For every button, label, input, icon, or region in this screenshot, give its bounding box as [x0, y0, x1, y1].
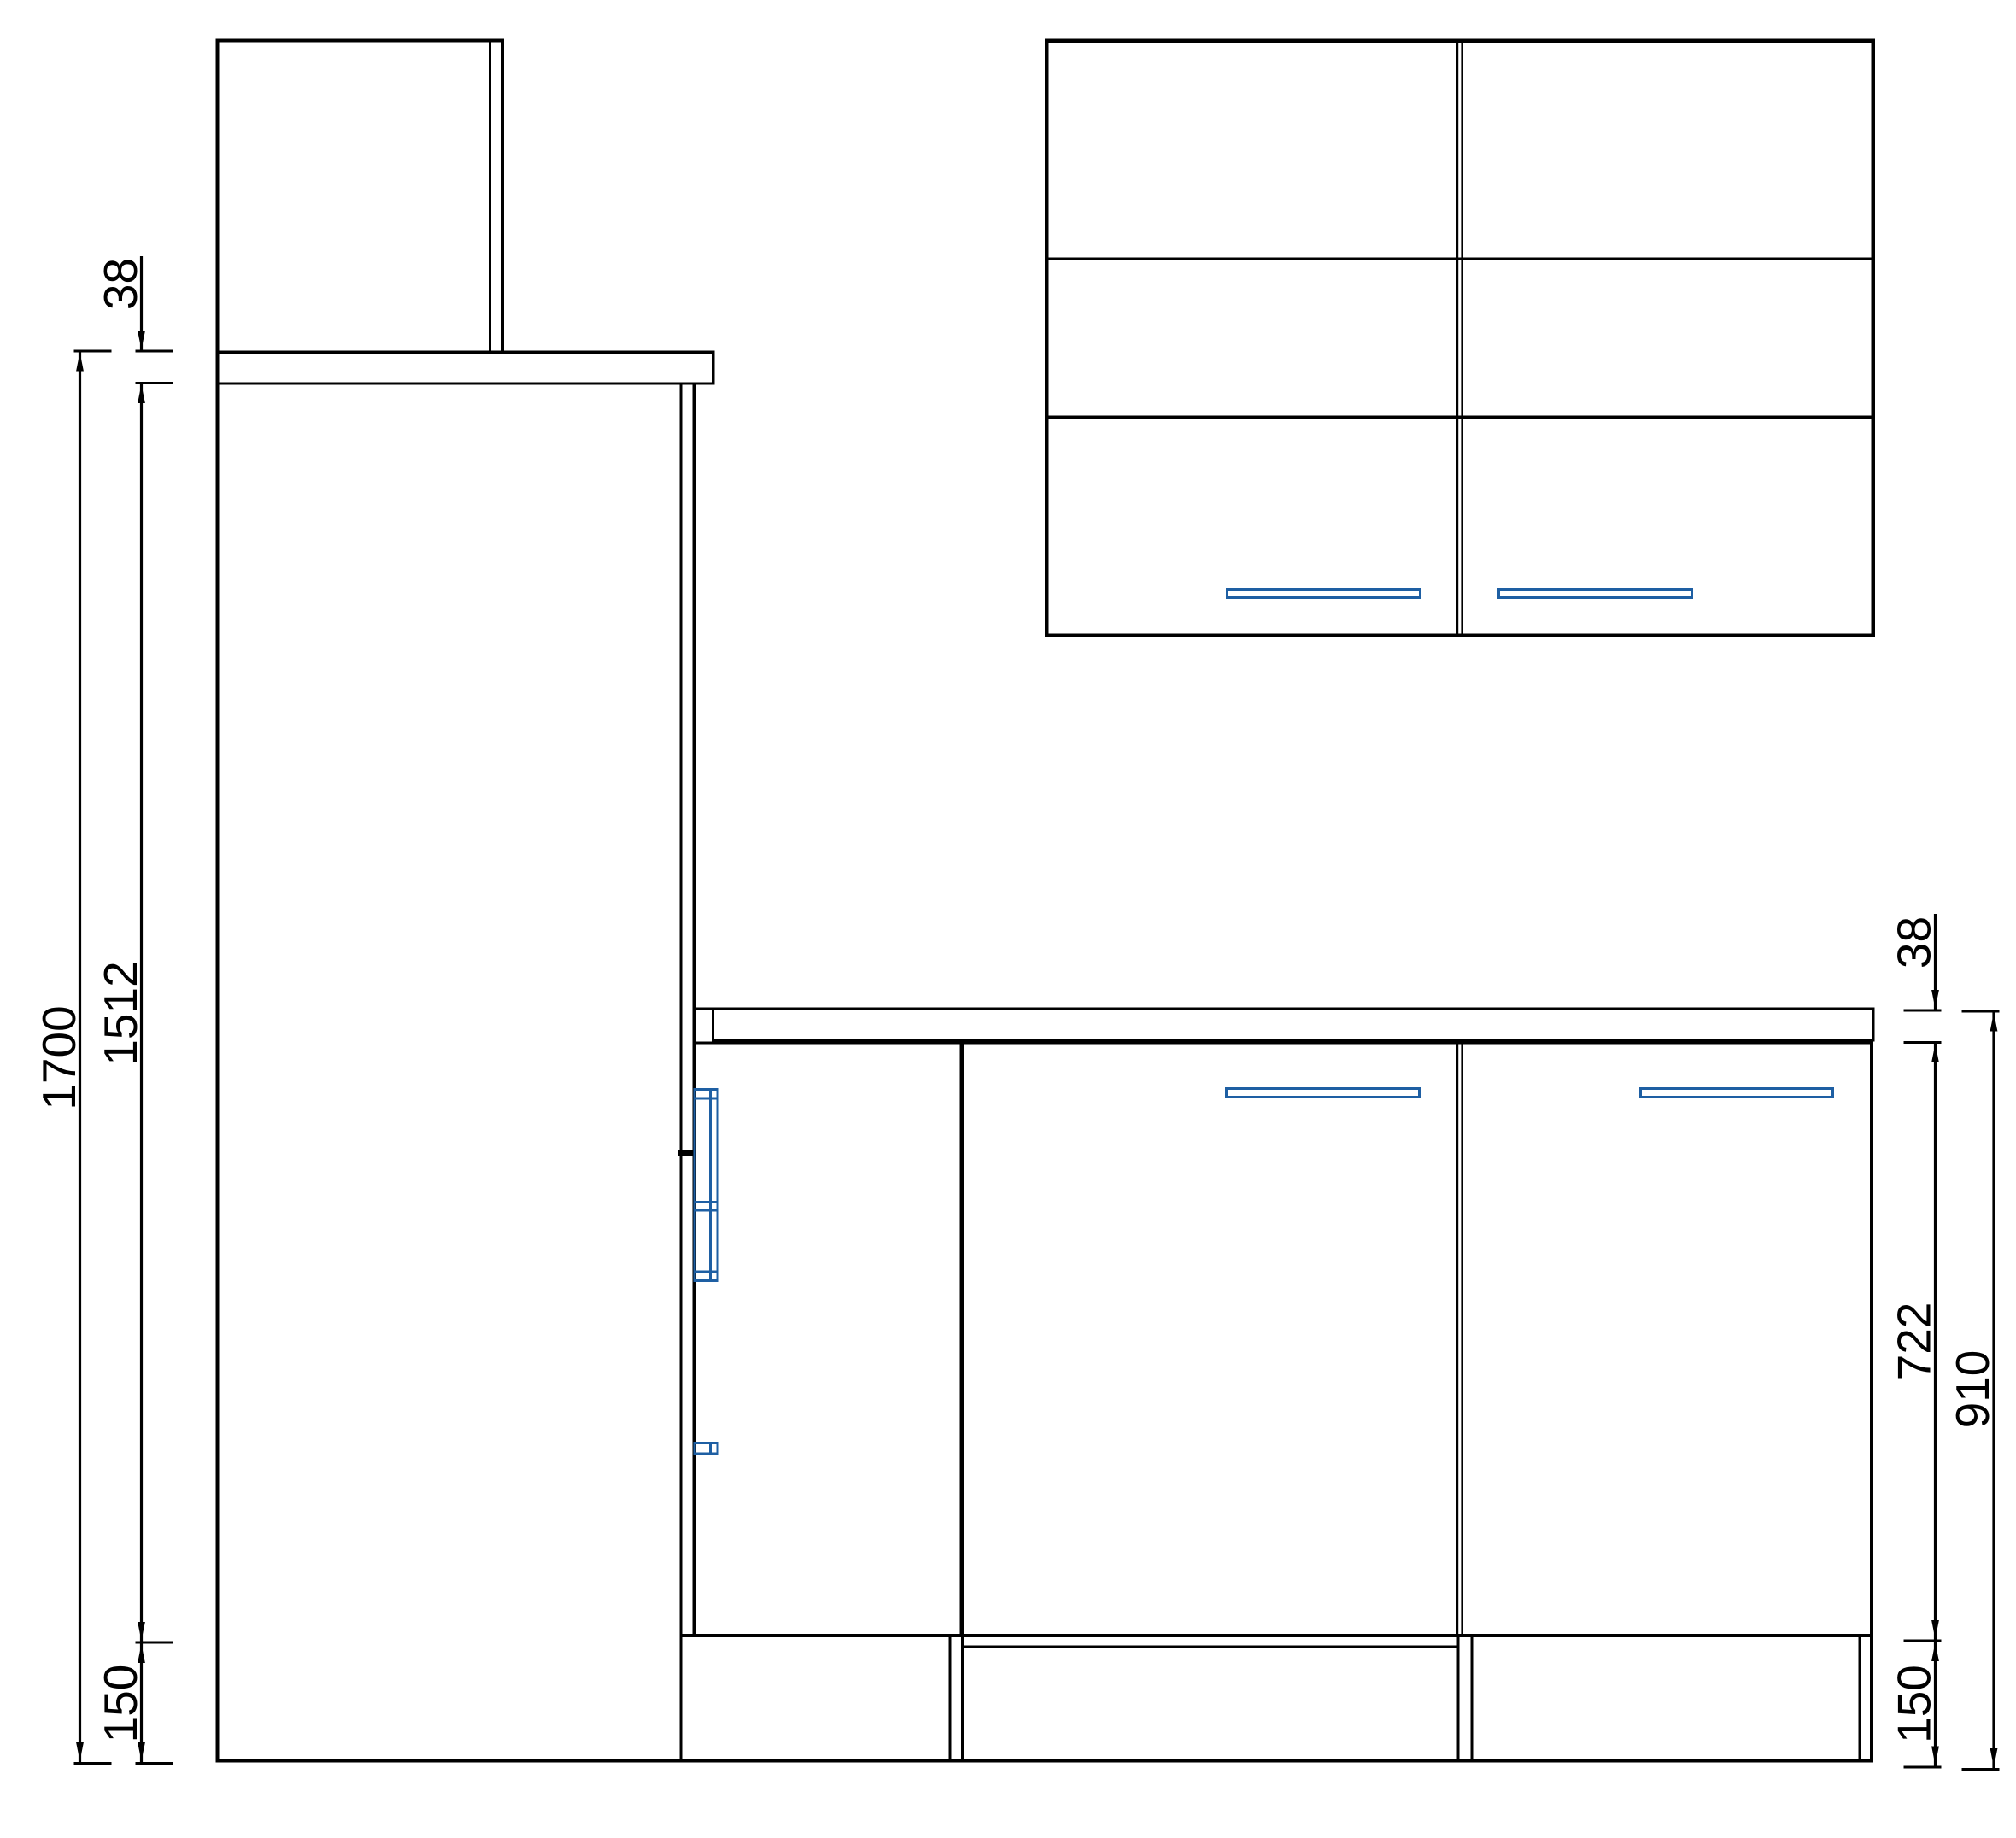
svg-text:38: 38: [1888, 916, 1941, 969]
svg-text:910: 910: [1946, 1350, 1999, 1429]
svg-text:722: 722: [1888, 1302, 1941, 1381]
svg-text:1512: 1512: [94, 961, 147, 1065]
svg-text:150: 150: [1888, 1665, 1941, 1743]
svg-text:1700: 1700: [32, 1005, 85, 1109]
svg-text:38: 38: [94, 258, 147, 310]
svg-text:150: 150: [94, 1665, 147, 1743]
